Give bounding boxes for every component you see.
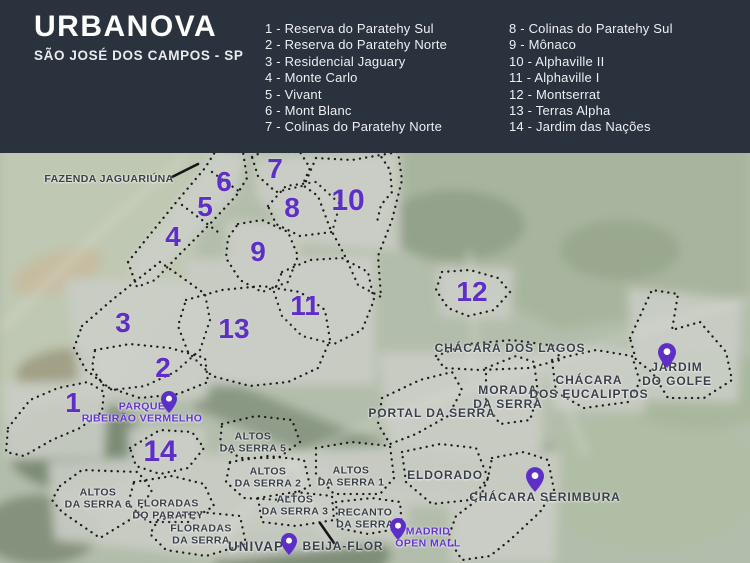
- chacara-serimbura-pin-icon: [526, 467, 544, 492]
- urbanova-map-infographic: 1 2 3 4 5 6 7 8 9 10 11 12 13 14 FAZENDA…: [0, 0, 750, 563]
- page-subtitle: SÃO JOSÉ DOS CAMPOS - SP: [34, 48, 243, 63]
- label-fazenda-jaguariuna: FAZENDA JAGUARIÚNA: [44, 173, 173, 185]
- map-number-13: 13: [218, 313, 249, 345]
- legend-item-3: 3 - Residencial Jaguary: [265, 54, 447, 70]
- map-number-2: 2: [155, 352, 171, 384]
- map-number-1: 1: [65, 387, 81, 419]
- label-altos-da-serra-2: ALTOS DA SERRA 2: [235, 466, 302, 491]
- label-floradas-da-serra: FLORADAS DA SERRA: [170, 523, 232, 548]
- label-altos-da-serra-6: ALTOS DA SERRA 6: [65, 487, 132, 512]
- map-number-7: 7: [267, 153, 283, 185]
- univap-pin-icon: [281, 533, 297, 555]
- label-floradas-do-paratey: FLORADAS DO PARATEY: [132, 498, 203, 523]
- page-title: URBANOVA: [34, 11, 243, 43]
- jardim-do-golfe-pin-icon: [658, 343, 676, 368]
- brand-block: URBANOVA SÃO JOSÉ DOS CAMPOS - SP: [34, 11, 243, 63]
- label-univap: UNIVAP: [228, 539, 284, 555]
- map-number-3: 3: [115, 307, 131, 339]
- legend-item-1: 1 - Reserva do Paratehy Sul: [265, 21, 447, 37]
- label-parque-ribeirao-vermelho: PARQUE RIBEIRÃO VERMELHO: [82, 401, 203, 426]
- map-number-9: 9: [250, 236, 266, 268]
- label-beija-flor: BEIJA-FLOR: [303, 539, 384, 553]
- label-eldorado: ELDORADO: [407, 468, 483, 482]
- legend-item-4: 4 - Monte Carlo: [265, 70, 447, 86]
- map-number-5: 5: [197, 191, 213, 223]
- label-portal-da-serra: PORTAL DA SERRA: [368, 406, 495, 420]
- label-altos-da-serra-1: ALTOS DA SERRA 1: [318, 465, 385, 490]
- legend-column-1: 1 - Reserva do Paratehy Sul 2 - Reserva …: [265, 21, 447, 136]
- map-number-10: 10: [331, 184, 364, 218]
- map-number-11: 11: [290, 290, 320, 322]
- label-recanto-da-serra: RECANTO DA SERRA: [336, 507, 394, 532]
- legend-item-14: 14 - Jardim das Nações: [509, 119, 673, 135]
- legend-item-2: 2 - Reserva do Paratehy Norte: [265, 37, 447, 53]
- legend-item-5: 5 - Vivant: [265, 87, 447, 103]
- map-number-12: 12: [456, 276, 487, 308]
- label-chacara-dos-lagos: CHÁCARA DOS LAGOS: [435, 341, 586, 355]
- legend-item-6: 6 - Mont Blanc: [265, 103, 447, 119]
- map-number-8: 8: [284, 192, 300, 224]
- legend-column-2: 8 - Colinas do Paratehy Sul 9 - Mônaco 1…: [509, 21, 673, 136]
- legend-item-10: 10 - Alphaville II: [509, 54, 673, 70]
- label-altos-da-serra-3: ALTOS DA SERRA 3: [262, 494, 329, 519]
- legend-item-11: 11 - Alphaville I: [509, 70, 673, 86]
- parque-ribeirao-vermelho-pin-icon: [161, 391, 177, 413]
- legend-item-13: 13 - Terras Alpha: [509, 103, 673, 119]
- legend-item-12: 12 - Montserrat: [509, 87, 673, 103]
- map-number-4: 4: [165, 221, 181, 253]
- madrid-open-mall-pin-icon: [390, 518, 406, 540]
- map-number-14: 14: [143, 435, 176, 469]
- legend-item-8: 8 - Colinas do Paratehy Sul: [509, 21, 673, 37]
- label-altos-da-serra-5: ALTOS DA SERRA 5: [220, 431, 287, 456]
- label-jardim-do-golfe: JARDIM DO GOLFE: [641, 360, 714, 388]
- header: URBANOVA SÃO JOSÉ DOS CAMPOS - SP 1 - Re…: [0, 0, 750, 153]
- label-chacara-serimbura: CHÁCARA SERIMBURA: [469, 490, 621, 504]
- label-chacara-dos-eucaliptos: CHÁCARA DOS EUCALIPTOS: [529, 373, 648, 401]
- legend-item-9: 9 - Mônaco: [509, 37, 673, 53]
- legend-item-7: 7 - Colinas do Paratehy Norte: [265, 119, 447, 135]
- map-number-6: 6: [216, 166, 232, 198]
